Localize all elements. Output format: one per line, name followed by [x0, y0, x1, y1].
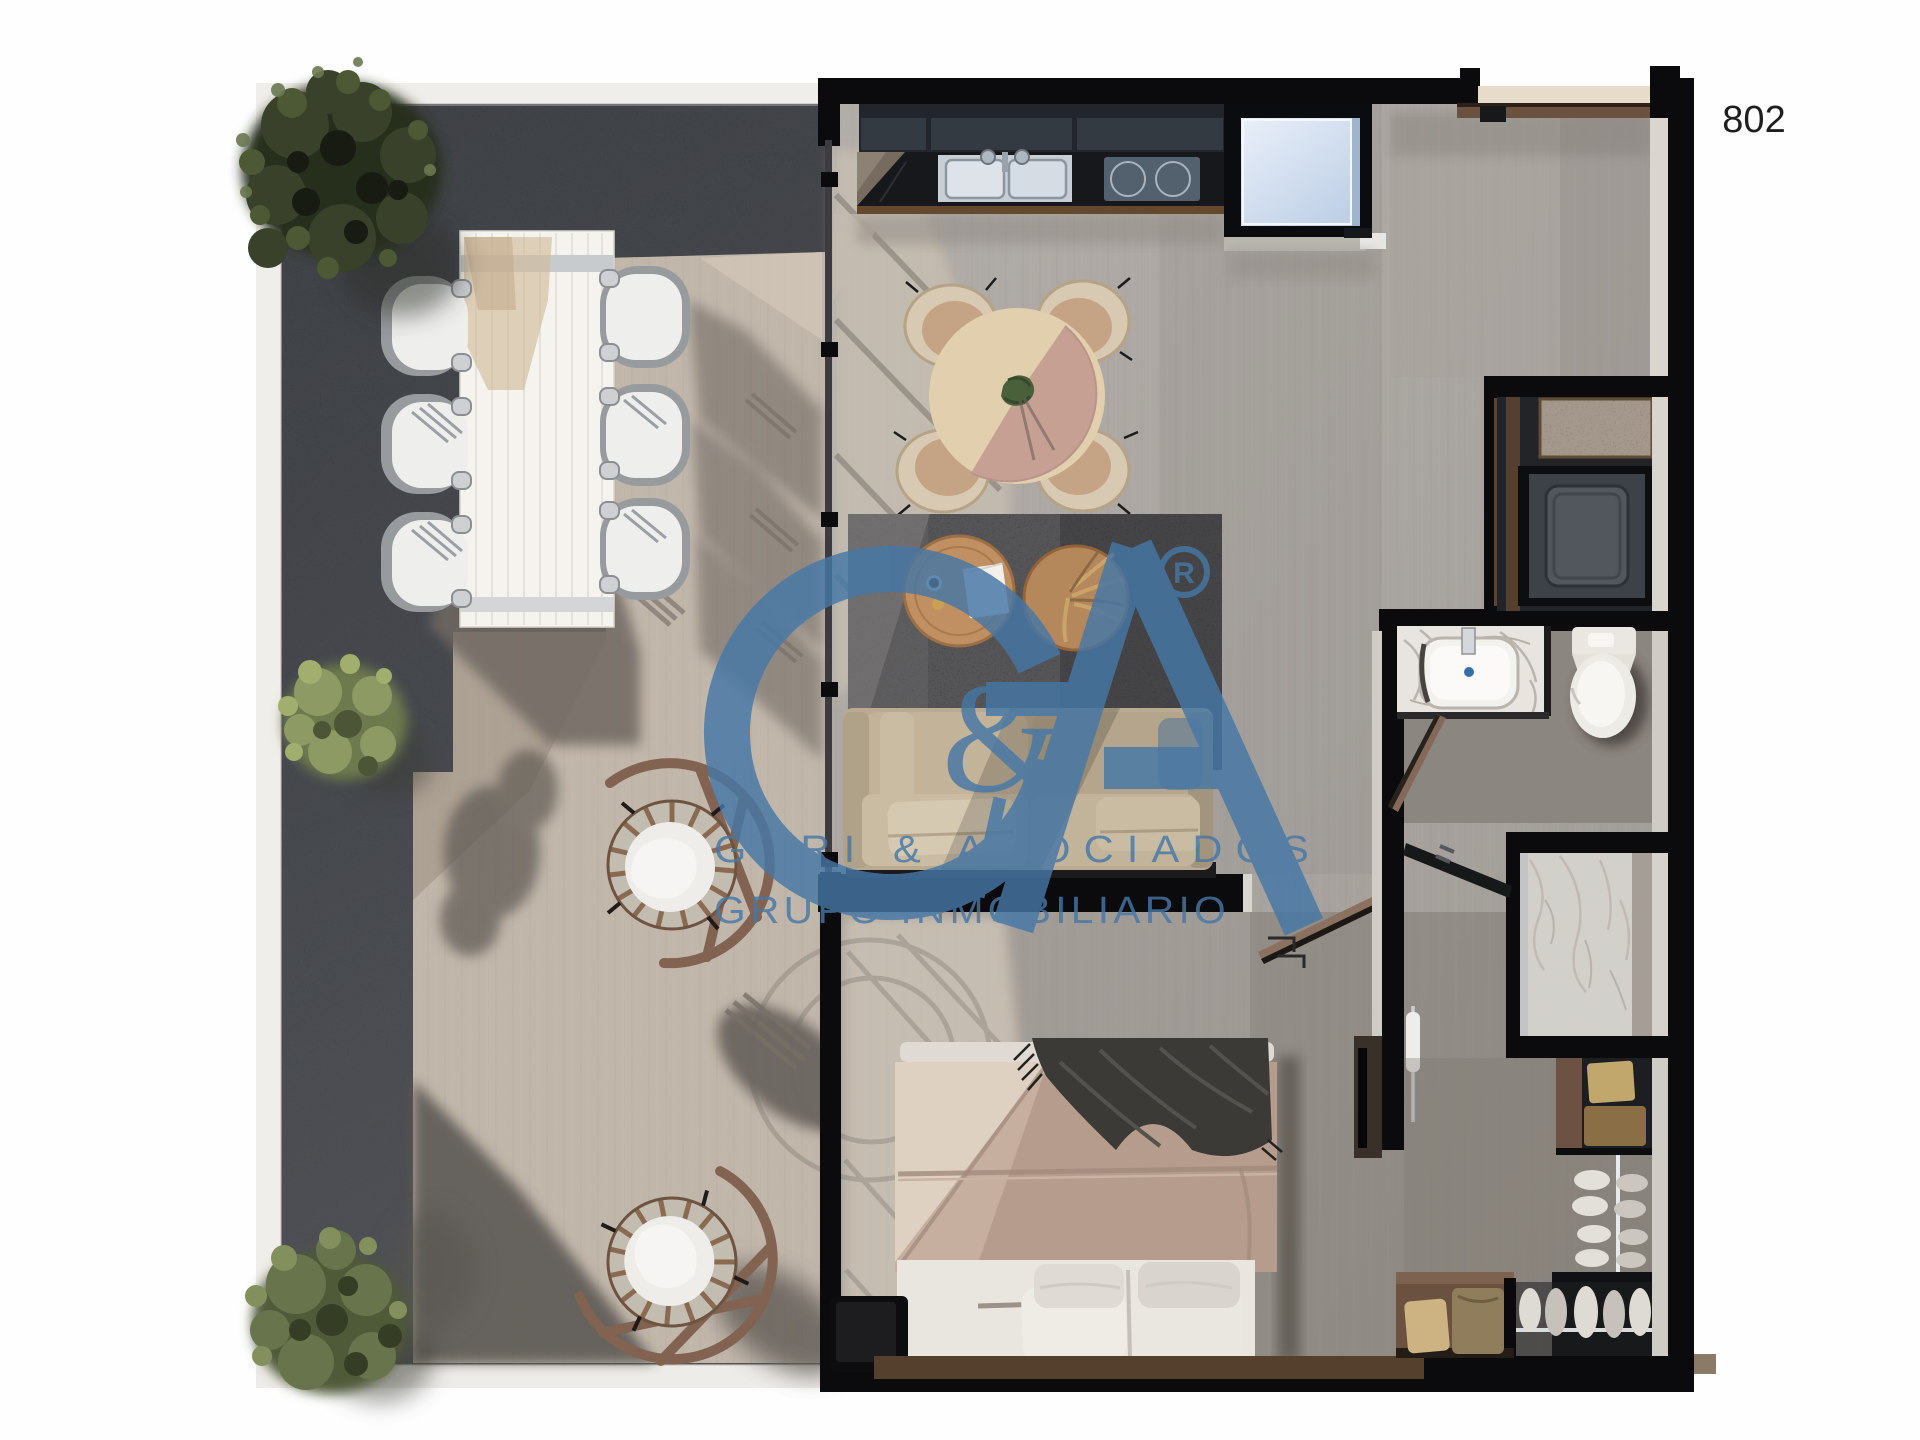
svg-text:R: R — [1173, 557, 1195, 590]
svg-text:GARI & ASOCIADOS: GARI & ASOCIADOS — [714, 829, 1322, 871]
svg-text:802: 802 — [1722, 99, 1785, 141]
svg-text:GRUPO INMOBILIARIO: GRUPO INMOBILIARIO — [714, 890, 1230, 932]
